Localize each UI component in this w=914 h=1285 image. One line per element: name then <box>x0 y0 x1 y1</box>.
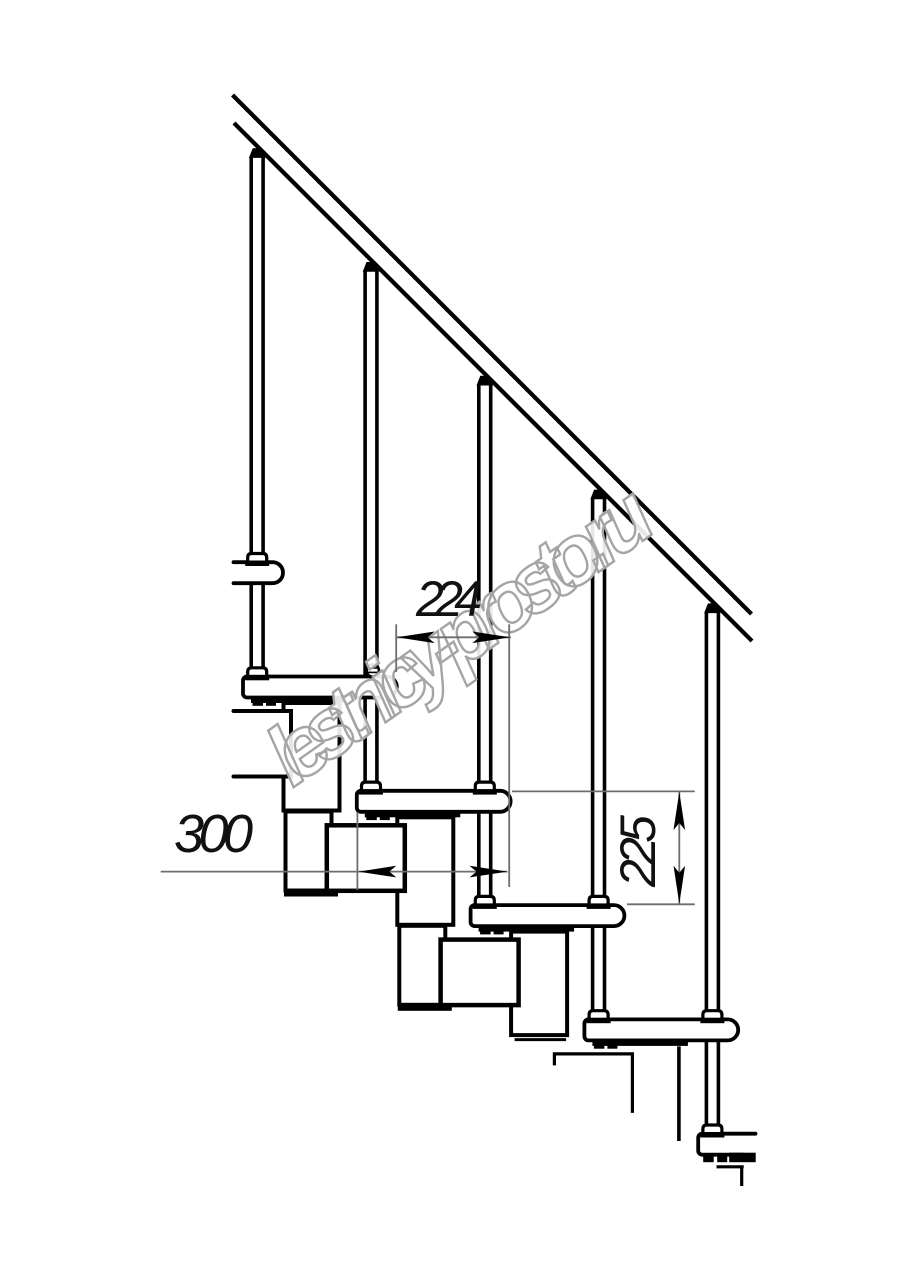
svg-text:224: 224 <box>415 571 482 627</box>
svg-text:300: 300 <box>174 804 253 864</box>
svg-text:225: 225 <box>610 815 666 888</box>
